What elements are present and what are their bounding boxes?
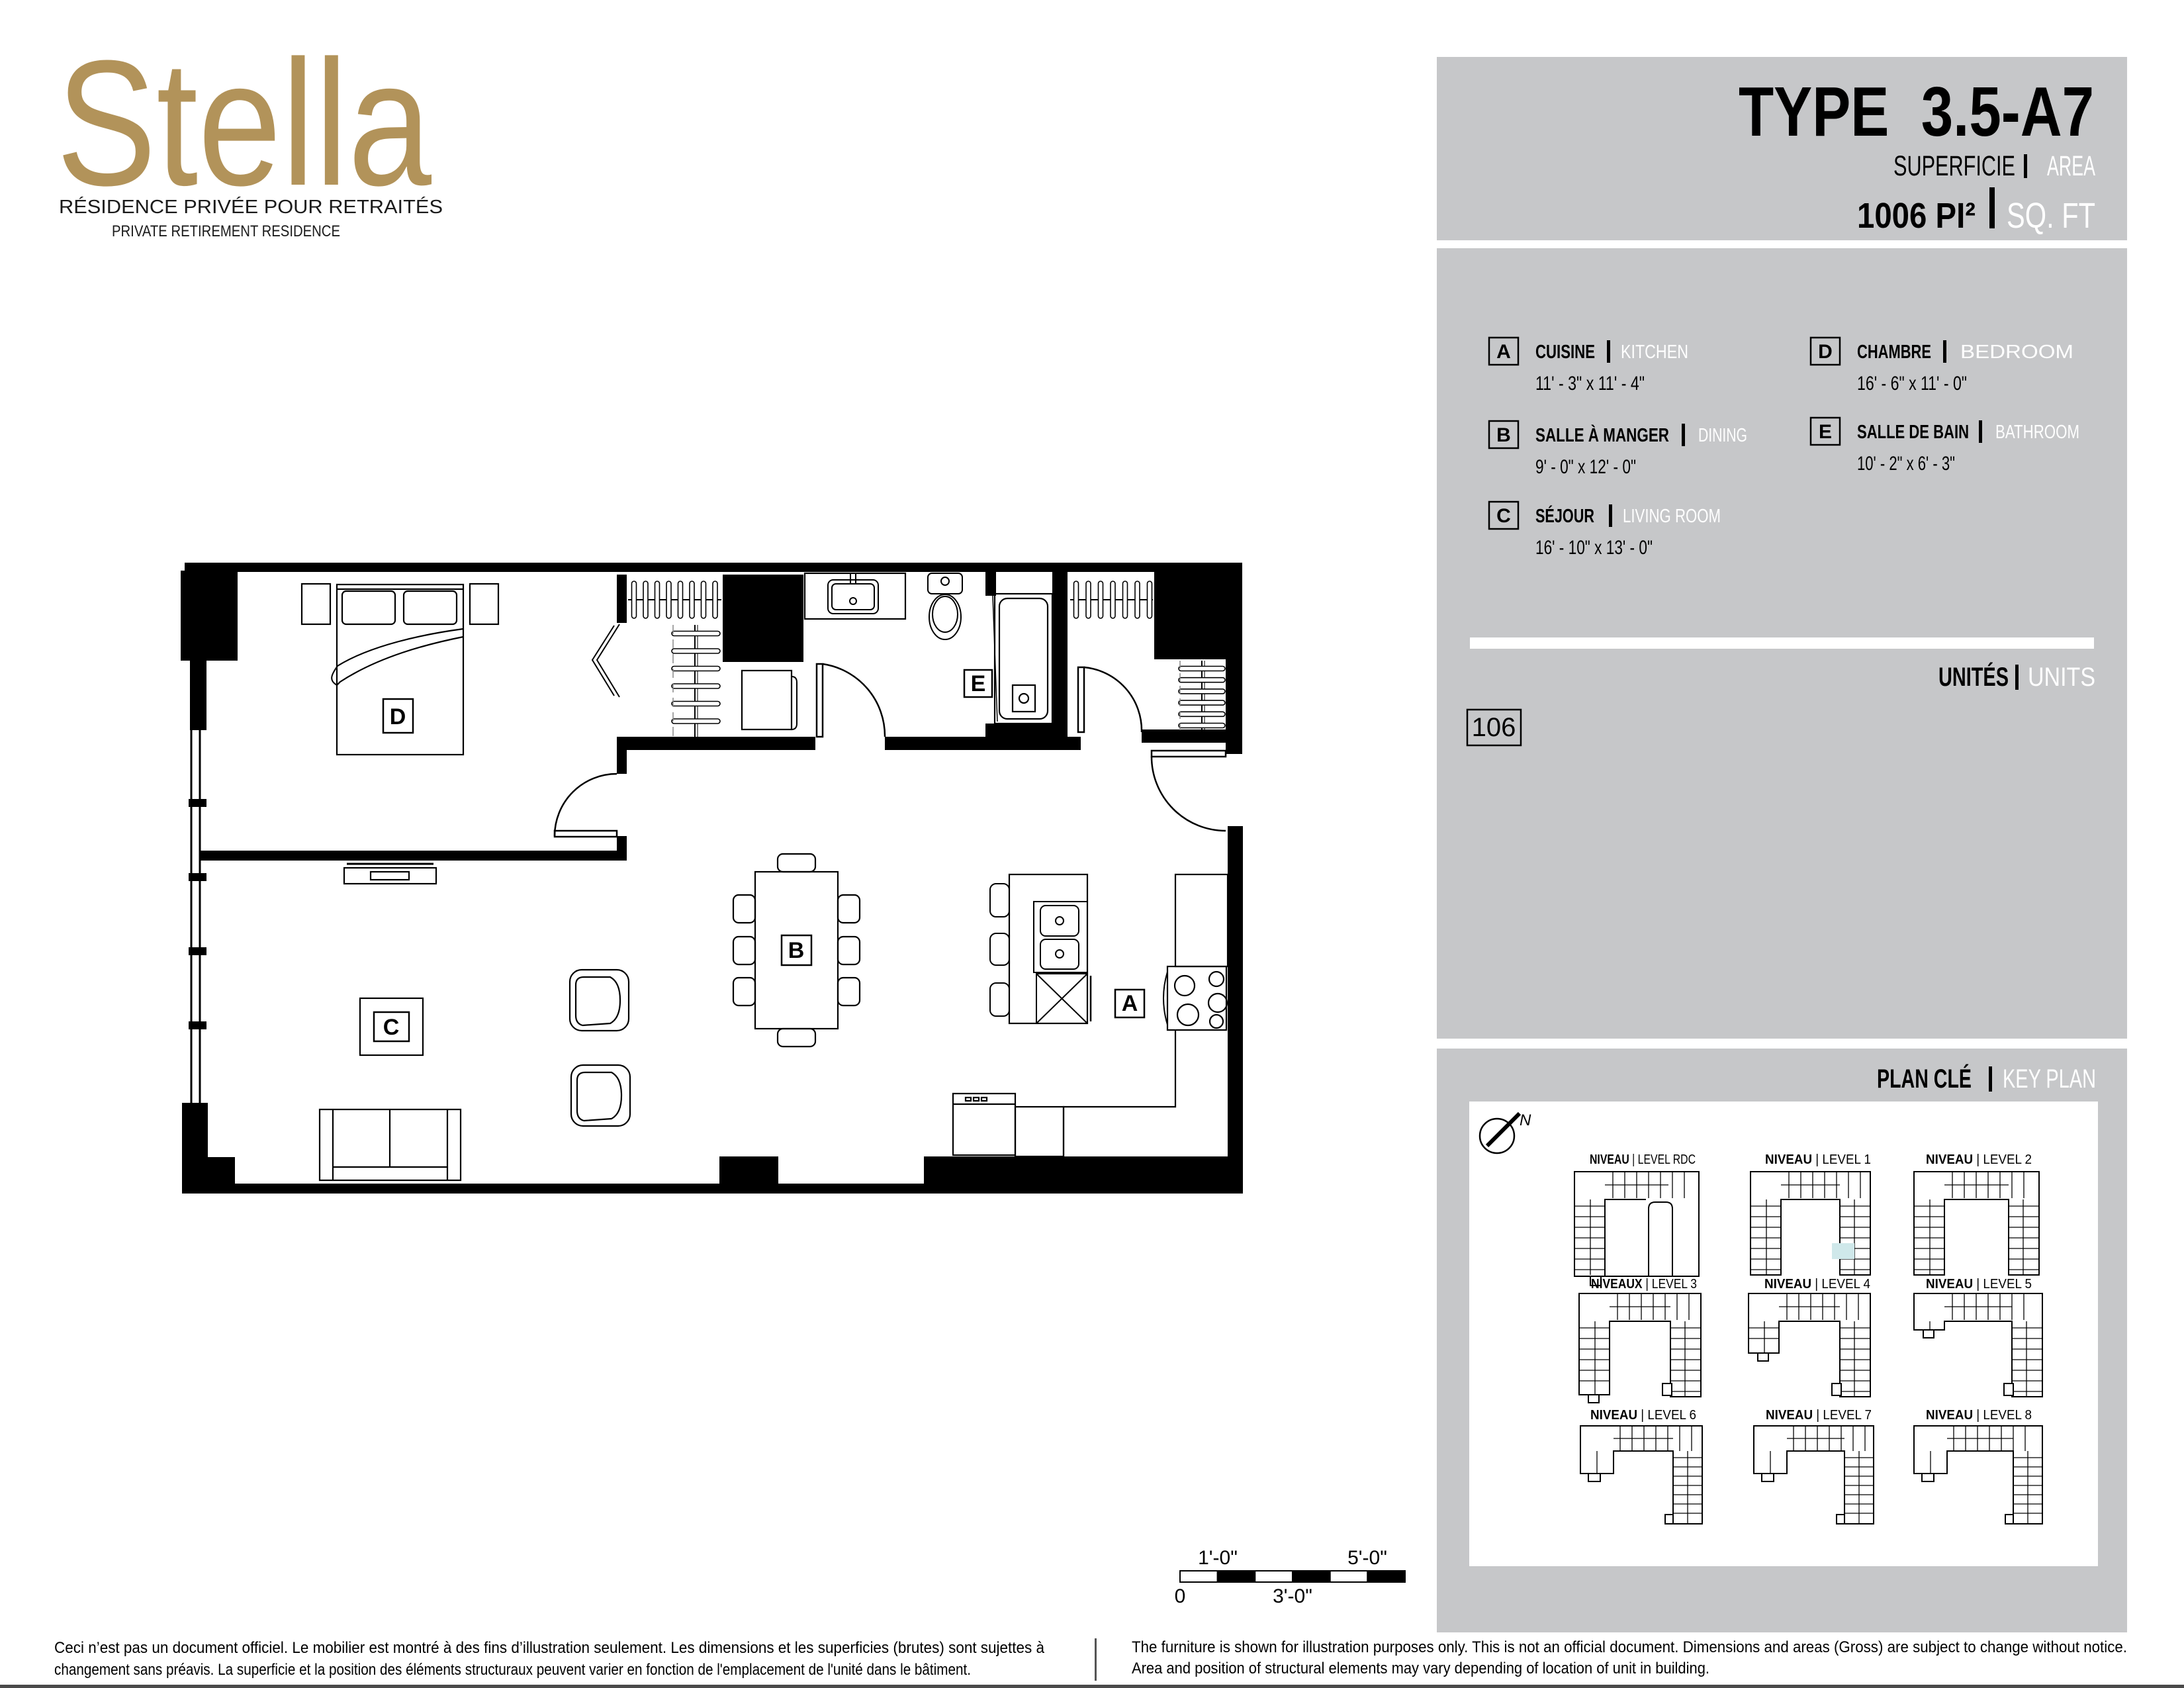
svg-text:D: D — [1818, 341, 1833, 363]
svg-text:Area and position of structura: Area and position of structural elements… — [1132, 1660, 1709, 1677]
svg-text:SUPERFICIE: SUPERFICIE — [1893, 150, 2015, 182]
svg-text:NIVEAU | LEVEL 2: NIVEAU | LEVEL 2 — [1926, 1152, 2032, 1167]
svg-text:10' - 2" x 6' - 3": 10' - 2" x 6' - 3" — [1857, 453, 1955, 475]
svg-text:CUISINE: CUISINE — [1535, 342, 1595, 363]
svg-text:Stella: Stella — [56, 24, 432, 223]
svg-text:B: B — [1496, 424, 1511, 446]
svg-text:SÉJOUR: SÉJOUR — [1535, 504, 1594, 527]
svg-text:16' - 6" x 11' - 0": 16' - 6" x 11' - 0" — [1857, 373, 1967, 395]
svg-text:NIVEAU | LEVEL 1: NIVEAU | LEVEL 1 — [1765, 1152, 1871, 1167]
svg-text:RÉSIDENCE PRIVÉE POUR RETRAITÉ: RÉSIDENCE PRIVÉE POUR RETRAITÉS — [59, 196, 443, 218]
svg-text:SALLE DE BAIN: SALLE DE BAIN — [1857, 422, 1969, 443]
svg-text:AREA: AREA — [2047, 150, 2095, 182]
svg-text:NIVEAUX | LEVEL 3: NIVEAUX | LEVEL 3 — [1591, 1277, 1697, 1291]
svg-text:KITCHEN: KITCHEN — [1621, 342, 1688, 363]
svg-text:A: A — [1122, 991, 1138, 1016]
svg-text:UNITÉS: UNITÉS — [1938, 662, 2009, 692]
svg-text:LIVING ROOM: LIVING ROOM — [1623, 506, 1721, 527]
svg-text:11' - 3" x 11' - 4": 11' - 3" x 11' - 4" — [1535, 373, 1645, 395]
svg-text:BEDROOM: BEDROOM — [1960, 342, 2073, 363]
svg-text:SQ. FT: SQ. FT — [2007, 196, 2095, 236]
svg-text:SALLE À MANGER: SALLE À MANGER — [1535, 424, 1669, 446]
svg-text:D: D — [390, 704, 406, 729]
svg-text:3'-0": 3'-0" — [1273, 1585, 1312, 1607]
svg-text:Ceci n’est pas un document off: Ceci n’est pas un document officiel. Le … — [54, 1639, 1045, 1657]
svg-text:A: A — [1496, 341, 1511, 363]
svg-text:PLAN CLÉ: PLAN CLÉ — [1877, 1064, 1972, 1094]
svg-text:NIVEAU | LEVEL 4: NIVEAU | LEVEL 4 — [1764, 1277, 1870, 1291]
svg-text:PRIVATE RETIREMENT RESIDENCE: PRIVATE RETIREMENT RESIDENCE — [112, 222, 340, 240]
svg-text:1'-0": 1'-0" — [1198, 1547, 1238, 1569]
svg-text:NIVEAU | LEVEL 8: NIVEAU | LEVEL 8 — [1926, 1408, 2032, 1423]
svg-text:DINING: DINING — [1698, 425, 1747, 446]
svg-text:9' - 0" x 12' - 0": 9' - 0" x 12' - 0" — [1535, 456, 1636, 478]
svg-text:BATHROOM: BATHROOM — [1995, 422, 2079, 443]
svg-text:NIVEAU | LEVEL 6: NIVEAU | LEVEL 6 — [1590, 1408, 1696, 1423]
svg-text:NIVEAU | LEVEL RDC: NIVEAU | LEVEL RDC — [1590, 1152, 1696, 1167]
svg-text:E: E — [971, 671, 986, 696]
svg-text:The furniture is shown for ill: The furniture is shown for illustration … — [1132, 1638, 2127, 1656]
svg-text:N: N — [1520, 1111, 1531, 1129]
svg-text:5'-0": 5'-0" — [1347, 1547, 1387, 1569]
svg-text:16' - 10" x 13' - 0": 16' - 10" x 13' - 0" — [1535, 537, 1653, 559]
svg-text:B: B — [788, 938, 805, 963]
svg-text:C: C — [383, 1015, 400, 1040]
svg-text:NIVEAU | LEVEL 5: NIVEAU | LEVEL 5 — [1926, 1277, 2032, 1291]
svg-text:1006 PI²: 1006 PI² — [1857, 196, 1976, 236]
svg-text:E: E — [1819, 421, 1832, 443]
svg-text:C: C — [1496, 505, 1511, 527]
svg-text:CHAMBRE: CHAMBRE — [1857, 342, 1931, 363]
svg-text:106: 106 — [1472, 713, 1516, 742]
svg-text:changement sans préavis. La su: changement sans préavis. La superficie e… — [54, 1661, 971, 1679]
svg-text:0: 0 — [1175, 1585, 1186, 1607]
svg-text:TYPE 3.5-A7: TYPE 3.5-A7 — [1739, 73, 2094, 151]
svg-text:KEY PLAN: KEY PLAN — [2003, 1064, 2096, 1094]
svg-text:NIVEAU | LEVEL 7: NIVEAU | LEVEL 7 — [1766, 1408, 1872, 1423]
svg-text:UNITS: UNITS — [2028, 663, 2095, 692]
